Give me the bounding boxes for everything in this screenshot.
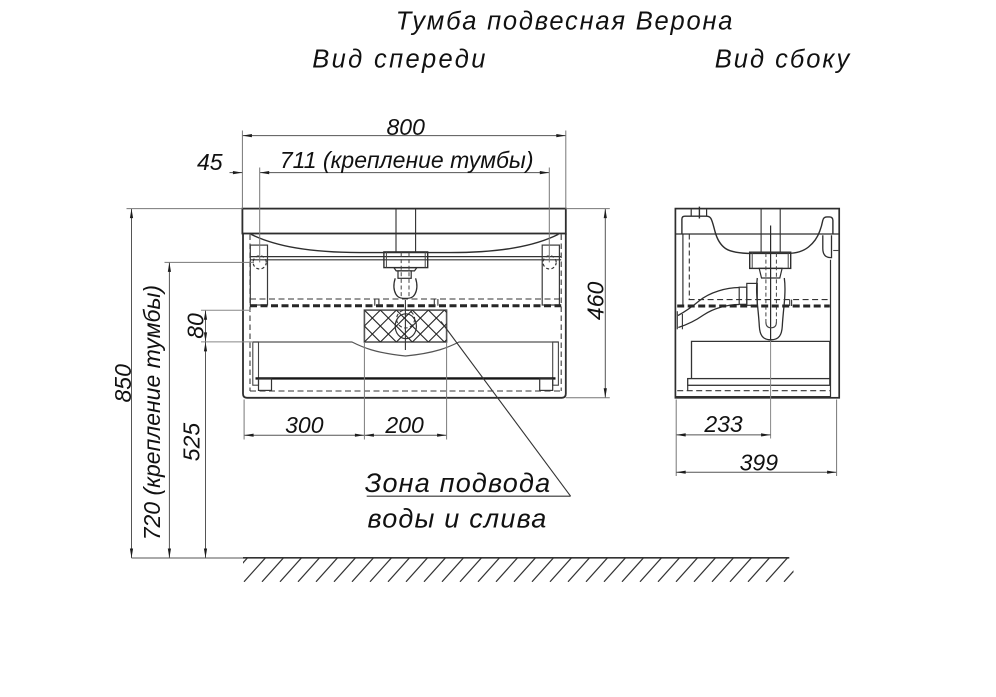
svg-text:Вид сбоку: Вид сбоку (715, 46, 852, 74)
svg-text:воды и слива: воды и слива (368, 504, 548, 534)
svg-text:525: 525 (179, 423, 205, 462)
svg-text:80: 80 (183, 313, 209, 339)
svg-text:Вид спереди: Вид спереди (312, 46, 488, 74)
svg-text:850: 850 (110, 364, 136, 403)
svg-text:300: 300 (285, 412, 324, 438)
svg-text:233: 233 (703, 411, 743, 437)
svg-text:Тумба подвесная Верона: Тумба подвесная Верона (396, 8, 735, 36)
svg-text:200: 200 (384, 412, 424, 438)
svg-text:720 (крепление тумбы): 720 (крепление тумбы) (139, 285, 165, 540)
svg-text:711 (крепление тумбы): 711 (крепление тумбы) (280, 147, 534, 173)
svg-text:800: 800 (387, 114, 426, 140)
svg-text:Зона подвода: Зона подвода (365, 468, 552, 498)
svg-text:45: 45 (197, 149, 223, 175)
svg-text:399: 399 (740, 450, 779, 476)
svg-text:460: 460 (583, 282, 609, 321)
